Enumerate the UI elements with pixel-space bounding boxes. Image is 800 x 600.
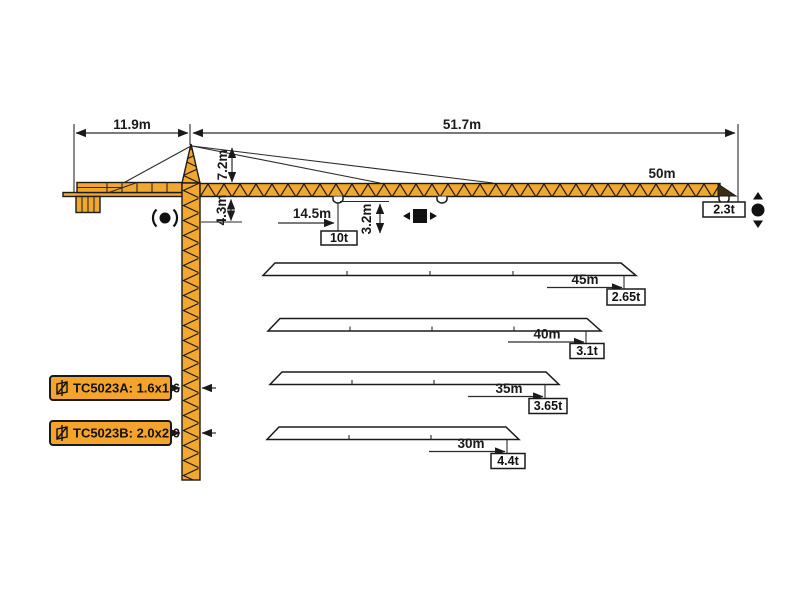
jib-variant-45m: 45m 2.65t bbox=[263, 263, 645, 305]
dim-trolley-radius: 14.5m bbox=[293, 206, 331, 221]
slewing-icon bbox=[153, 210, 177, 227]
variant-length-45m: 45m bbox=[571, 272, 598, 287]
tip-load: 2.3t bbox=[703, 202, 745, 217]
variant-load-35m: 3.65t bbox=[534, 399, 563, 413]
jib-variant-40m: 40m 3.1t bbox=[268, 319, 604, 359]
dim-trolley-drop: 3.2m bbox=[359, 204, 374, 235]
hoisting-icon bbox=[752, 192, 765, 228]
variant-length-30m: 30m bbox=[457, 436, 484, 451]
tip-load-value: 2.3t bbox=[713, 203, 735, 217]
counter-jib bbox=[63, 183, 200, 213]
trolley-dimension: 14.5m 10t bbox=[278, 203, 357, 245]
variant-load-40m: 3.1t bbox=[576, 344, 598, 358]
variant-load-30m: 4.4t bbox=[497, 454, 519, 468]
jib-hanger bbox=[437, 197, 447, 204]
dim-jib-span: 51.7m bbox=[443, 117, 481, 132]
model-a-label: TC5023A: 1.6x1.6 bbox=[73, 381, 180, 396]
dim-counter-jib-length: 11.9m bbox=[113, 117, 151, 132]
variant-length-35m: 35m bbox=[495, 381, 522, 396]
max-load-value: 10t bbox=[330, 231, 349, 245]
jib-variant-35m: 35m 3.65t bbox=[270, 372, 567, 414]
variant-load-45m: 2.65t bbox=[612, 290, 641, 304]
model-b-label: TC5023B: 2.0x2.0 bbox=[73, 426, 180, 441]
main-jib-length-label: 50m bbox=[648, 166, 675, 181]
crane-load-diagram: 11.9m 51.7m 50m bbox=[0, 0, 800, 600]
dim-under-jib: 4.3m bbox=[214, 195, 229, 226]
variant-length-40m: 40m bbox=[533, 327, 560, 342]
trolley-travel-icon bbox=[403, 209, 437, 223]
main-jib: 50m bbox=[200, 166, 736, 203]
jib-tip bbox=[718, 184, 736, 196]
tower-mast bbox=[182, 144, 200, 480]
dim-tower-head: 7.2m bbox=[215, 150, 230, 181]
jib-variant-30m: 30m 4.4t bbox=[267, 427, 525, 469]
